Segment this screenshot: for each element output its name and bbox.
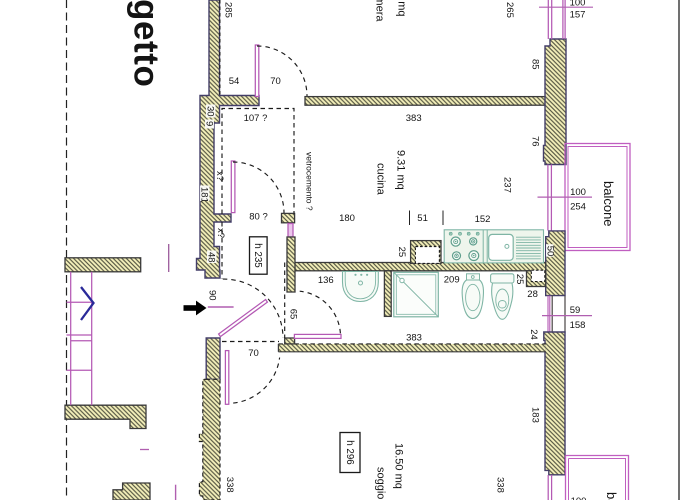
svg-text:24: 24 (528, 329, 539, 340)
svg-text:4.50 mq: 4.50 mq (396, 0, 408, 17)
svg-text:48: 48 (206, 252, 217, 263)
svg-text:25: 25 (514, 274, 525, 285)
svg-text:camera: camera (374, 0, 386, 22)
svg-text:59: 59 (570, 305, 581, 316)
svg-text:9.31 mq: 9.31 mq (395, 150, 407, 190)
svg-text:h 235: h 235 (252, 243, 263, 268)
svg-text:50: 50 (545, 246, 556, 257)
svg-text:76: 76 (530, 136, 541, 147)
svg-text:vetrocemento ?: vetrocemento ? (305, 152, 315, 211)
svg-text:237: 237 (502, 177, 513, 193)
svg-text:265: 265 (504, 2, 515, 18)
svg-text:h 296: h 296 (344, 440, 355, 465)
svg-text:383: 383 (406, 333, 422, 344)
svg-text:51: 51 (417, 213, 428, 224)
svg-text:80 ?: 80 ? (249, 212, 268, 223)
svg-text:30: 30 (205, 106, 216, 117)
svg-text:158: 158 (570, 320, 586, 331)
svg-text:cucina: cucina (375, 163, 387, 196)
svg-text:balcone: balcone (604, 492, 619, 500)
svg-text:338: 338 (224, 477, 235, 493)
svg-text:getto: getto (127, 0, 166, 88)
svg-text:16.50 mq: 16.50 mq (393, 443, 405, 489)
svg-text:383: 383 (406, 113, 422, 124)
svg-text:x?: x? (215, 228, 226, 238)
svg-text:183: 183 (529, 407, 540, 423)
svg-text:100: 100 (570, 0, 586, 8)
svg-text:9: 9 (204, 121, 215, 126)
svg-text:285: 285 (223, 2, 234, 18)
svg-text:136: 136 (318, 275, 334, 286)
svg-text:65: 65 (287, 309, 298, 320)
svg-text:70: 70 (270, 76, 281, 87)
svg-text:181: 181 (199, 187, 210, 203)
svg-text:100: 100 (570, 187, 586, 198)
svg-text:25: 25 (396, 247, 407, 258)
svg-text:254: 254 (570, 202, 586, 213)
svg-text:28: 28 (527, 289, 538, 300)
svg-text:balcone: balcone (601, 181, 616, 227)
svg-text:152: 152 (475, 214, 491, 225)
svg-text:100: 100 (571, 496, 587, 500)
svg-text:70: 70 (248, 348, 259, 359)
svg-text:209: 209 (444, 275, 460, 286)
svg-text:338: 338 (495, 477, 506, 493)
svg-text:90: 90 (207, 290, 218, 301)
svg-text:x?: x? (214, 171, 225, 181)
svg-text:54: 54 (229, 76, 240, 87)
svg-text:soggiorno: soggiorno (375, 467, 387, 500)
svg-text:107 ?: 107 ? (244, 113, 268, 124)
svg-text:157: 157 (570, 10, 586, 21)
svg-text:180: 180 (339, 213, 355, 224)
svg-text:85: 85 (530, 59, 541, 70)
